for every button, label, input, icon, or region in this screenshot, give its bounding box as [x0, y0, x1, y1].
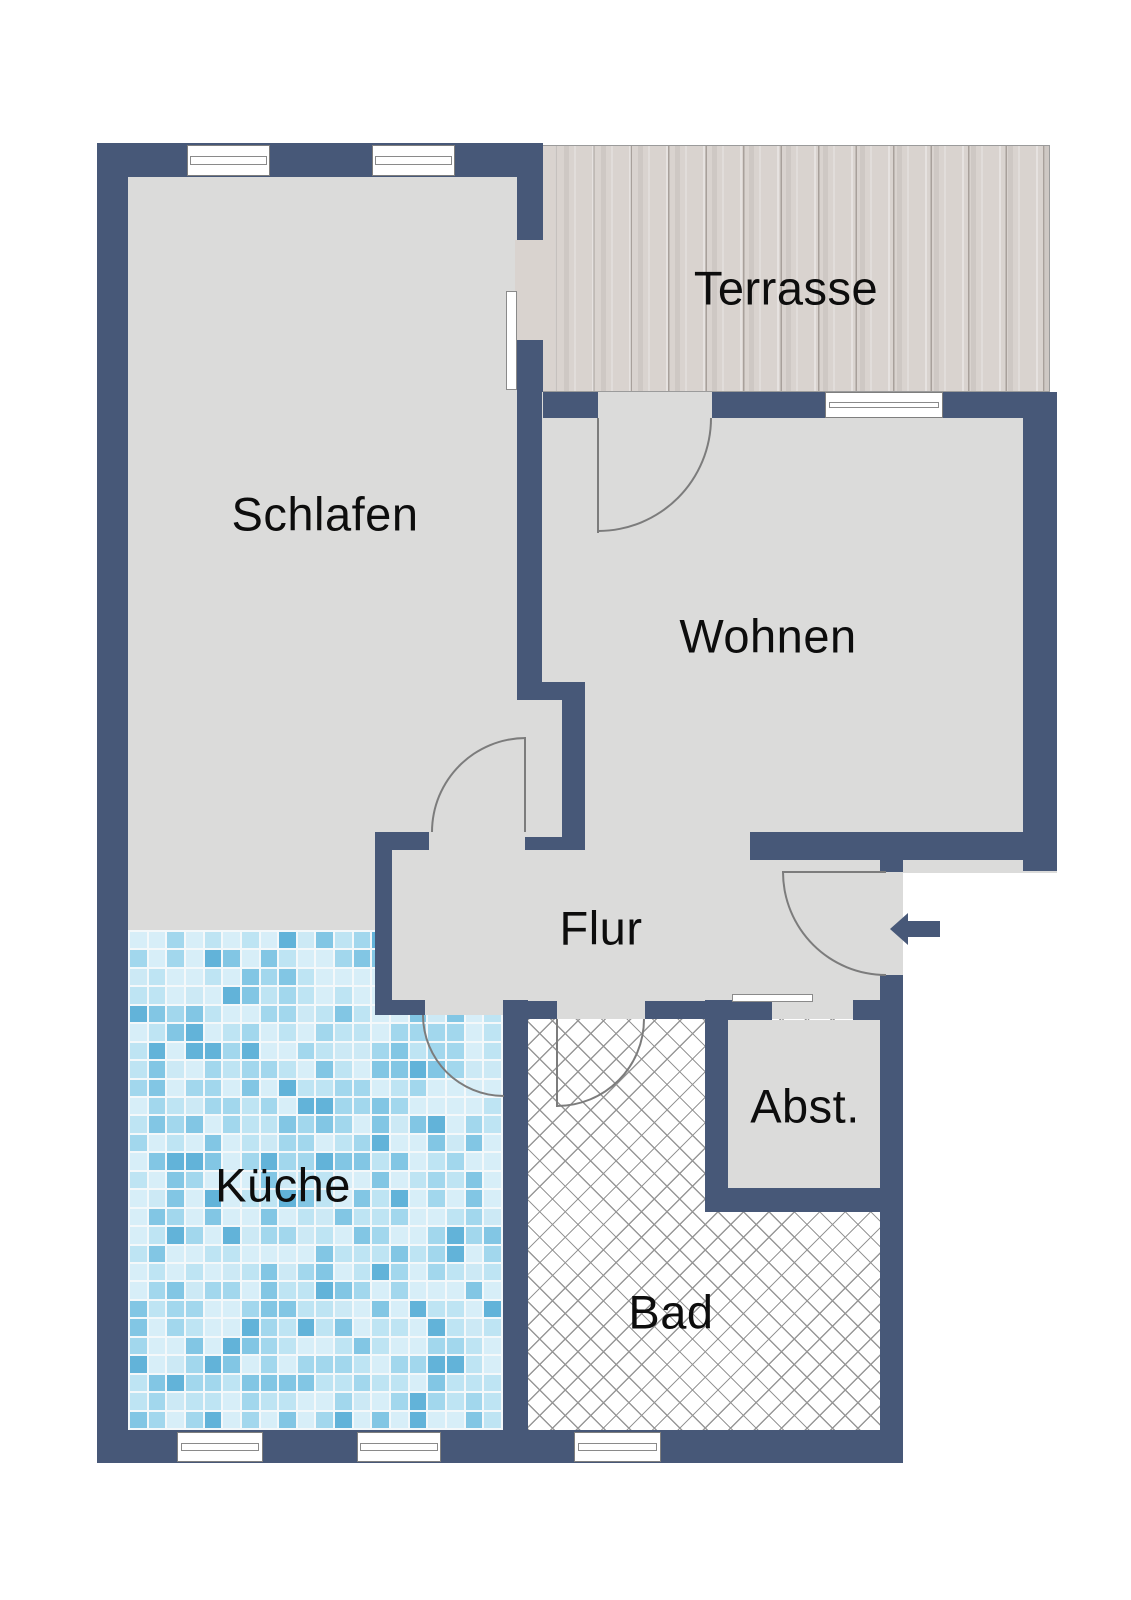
kueche-tile	[354, 932, 371, 948]
kueche-tile	[335, 1006, 352, 1022]
kueche-tile	[447, 1227, 464, 1243]
kueche-tile	[428, 1153, 445, 1169]
label-terrasse: Terrasse	[694, 261, 878, 316]
kueche-tile	[428, 1264, 445, 1280]
kueche-tile	[186, 1098, 203, 1114]
kueche-tile	[372, 1412, 389, 1428]
kueche-tile	[354, 1135, 371, 1151]
kueche-tile	[242, 1006, 259, 1022]
kueche-tile	[279, 1061, 296, 1077]
kueche-tile	[447, 1393, 464, 1409]
kueche-tile	[316, 1412, 333, 1428]
kueche-tile	[130, 987, 147, 1003]
kueche-tile	[410, 1209, 427, 1225]
kueche-tile	[428, 1227, 445, 1243]
window-glass	[578, 1443, 658, 1451]
window-glass	[829, 402, 938, 409]
kueche-tile	[316, 969, 333, 985]
kueche-tile	[410, 1135, 427, 1151]
kueche-tile	[466, 1264, 483, 1280]
kueche-tile	[354, 1024, 371, 1040]
kueche-tile	[354, 1356, 371, 1372]
wall-kueche-stub	[375, 1000, 425, 1015]
kueche-tile	[186, 987, 203, 1003]
kueche-tile	[223, 1375, 240, 1391]
kueche-tile	[186, 1135, 203, 1151]
kueche-tile	[428, 1246, 445, 1262]
kueche-tile	[391, 1393, 408, 1409]
kueche-tile	[391, 1024, 408, 1040]
wall-terrasse-wohnen-mid	[712, 392, 825, 418]
kueche-tile	[223, 1393, 240, 1409]
kueche-tile	[186, 1190, 203, 1206]
kueche-tile	[316, 1043, 333, 1059]
kueche-tile	[372, 1153, 389, 1169]
kueche-tile	[149, 969, 166, 985]
kueche-tile	[149, 1356, 166, 1372]
kueche-tile	[223, 1006, 240, 1022]
kueche-tile	[279, 1098, 296, 1114]
kueche-tile	[242, 932, 259, 948]
kueche-tile	[298, 1061, 315, 1077]
kueche-tile	[354, 950, 371, 966]
kueche-tile	[372, 1190, 389, 1206]
kueche-tile	[298, 1080, 315, 1096]
kueche-tile	[167, 1116, 184, 1132]
kueche-tile	[261, 1080, 278, 1096]
kueche-tile	[279, 950, 296, 966]
kueche-tile	[298, 1006, 315, 1022]
kueche-tile	[428, 1135, 445, 1151]
kueche-tile	[354, 1338, 371, 1354]
kueche-tile	[261, 1098, 278, 1114]
kueche-tile	[335, 1080, 352, 1096]
kueche-tile	[391, 1061, 408, 1077]
kueche-tile	[279, 1338, 296, 1354]
wall-wohnen-bottom	[750, 832, 1057, 860]
kueche-tile	[186, 1356, 203, 1372]
kueche-tile	[316, 987, 333, 1003]
kueche-tile	[316, 1319, 333, 1335]
kueche-tile	[428, 1393, 445, 1409]
kueche-tile	[149, 1412, 166, 1428]
kueche-tile	[298, 1319, 315, 1335]
kueche-tile	[466, 1209, 483, 1225]
kueche-tile	[242, 1098, 259, 1114]
kueche-tile	[279, 1135, 296, 1151]
kueche-tile	[447, 1098, 464, 1114]
kueche-tile	[205, 1319, 222, 1335]
kueche-tile	[335, 1282, 352, 1298]
kueche-tile	[149, 950, 166, 966]
kueche-tile	[316, 1098, 333, 1114]
kueche-tile	[447, 1209, 464, 1225]
kueche-tile	[130, 950, 147, 966]
kueche-tile	[130, 1006, 147, 1022]
kueche-tile	[186, 1153, 203, 1169]
entrance-arrow-icon	[890, 913, 908, 945]
kueche-tile	[261, 1227, 278, 1243]
kueche-tile	[130, 1043, 147, 1059]
kueche-tile	[167, 1393, 184, 1409]
kueche-tile	[279, 1319, 296, 1335]
kueche-tile	[242, 1080, 259, 1096]
kueche-tile	[279, 1375, 296, 1391]
kueche-tile	[149, 1264, 166, 1280]
kueche-tile	[149, 1227, 166, 1243]
kueche-tile	[447, 1412, 464, 1428]
kueche-tile	[298, 1098, 315, 1114]
kueche-tile	[167, 1375, 184, 1391]
kueche-tile	[149, 932, 166, 948]
kueche-tile	[130, 1098, 147, 1114]
kueche-tile	[205, 1246, 222, 1262]
kueche-tile	[223, 1098, 240, 1114]
kueche-tile	[298, 1116, 315, 1132]
kueche-tile	[242, 987, 259, 1003]
kueche-tile	[410, 1375, 427, 1391]
kueche-tile	[354, 1190, 371, 1206]
kueche-tile	[279, 987, 296, 1003]
kueche-tile	[447, 1301, 464, 1317]
kueche-tile	[130, 1190, 147, 1206]
kueche-tile	[372, 1043, 389, 1059]
kueche-tile	[316, 1080, 333, 1096]
kueche-tile	[223, 1080, 240, 1096]
wall-exterior-right-lower	[880, 975, 903, 1463]
kueche-tile	[354, 1153, 371, 1169]
kueche-tile	[466, 1116, 483, 1132]
kueche-tile	[372, 1080, 389, 1096]
kueche-tile	[186, 1412, 203, 1428]
kueche-tile	[484, 1246, 501, 1262]
kueche-tile	[391, 1264, 408, 1280]
kueche-tile	[428, 1301, 445, 1317]
kueche-tile	[186, 932, 203, 948]
entrance-arrow-shaft	[908, 921, 940, 937]
kueche-tile	[428, 1375, 445, 1391]
window-glass	[181, 1443, 260, 1451]
kueche-tile	[167, 1135, 184, 1151]
kueche-tile	[279, 1227, 296, 1243]
kueche-tile	[484, 1264, 501, 1280]
kueche-tile	[410, 1301, 427, 1317]
kueche-tile	[223, 1338, 240, 1354]
kueche-tile	[316, 1006, 333, 1022]
kueche-tile	[130, 1024, 147, 1040]
kueche-tile	[261, 1338, 278, 1354]
kueche-tile	[298, 1024, 315, 1040]
window-wohnen-terrasse	[825, 392, 943, 418]
kueche-tile	[335, 932, 352, 948]
kueche-tile	[186, 1172, 203, 1188]
kueche-tile	[167, 1024, 184, 1040]
kueche-tile	[316, 932, 333, 948]
wall-kueche-flur	[375, 832, 392, 1015]
kueche-tile	[298, 1375, 315, 1391]
kueche-tile	[298, 1356, 315, 1372]
kueche-tile	[466, 1412, 483, 1428]
label-schlafen: Schlafen	[232, 487, 419, 542]
kueche-tile	[391, 1080, 408, 1096]
kueche-tile	[167, 1043, 184, 1059]
kueche-tile	[261, 1246, 278, 1262]
kueche-tile	[484, 1393, 501, 1409]
kueche-tile	[354, 969, 371, 985]
label-bad: Bad	[628, 1285, 713, 1340]
kueche-tile	[149, 1209, 166, 1225]
window-kueche-bottom-right	[357, 1432, 441, 1462]
kueche-tile	[354, 1375, 371, 1391]
kueche-tile	[242, 1301, 259, 1317]
kueche-tile	[130, 1209, 147, 1225]
kueche-tile	[466, 1319, 483, 1335]
kueche-tile	[223, 1264, 240, 1280]
wall-terrasse-wohnen-right	[943, 392, 1040, 418]
wall-abst-top-left	[705, 1000, 772, 1020]
kueche-tile	[316, 1061, 333, 1077]
kueche-tile	[205, 950, 222, 966]
kueche-tile	[354, 1209, 371, 1225]
kueche-tile	[391, 1135, 408, 1151]
kueche-tile	[484, 1227, 501, 1243]
kueche-tile	[130, 1301, 147, 1317]
kueche-tile	[205, 1116, 222, 1132]
wall-schlafen-wohnen-upper	[517, 392, 542, 700]
kueche-tile	[428, 1282, 445, 1298]
kueche-tile	[447, 1264, 464, 1280]
kueche-tile	[205, 1061, 222, 1077]
kueche-tile	[242, 969, 259, 985]
kueche-tile	[335, 1227, 352, 1243]
kueche-tile	[335, 1061, 352, 1077]
kueche-tile	[186, 1338, 203, 1354]
kueche-tile	[335, 1043, 352, 1059]
kueche-tile	[354, 1043, 371, 1059]
kueche-tile	[130, 932, 147, 948]
kueche-tile	[223, 1412, 240, 1428]
kueche-tile	[205, 1043, 222, 1059]
kueche-tile	[205, 1412, 222, 1428]
kueche-tile	[149, 1098, 166, 1114]
kueche-tile	[167, 987, 184, 1003]
kueche-tile	[279, 1301, 296, 1317]
kueche-tile	[410, 1393, 427, 1409]
kueche-tile	[466, 1172, 483, 1188]
window-glass	[190, 156, 266, 164]
kueche-tile	[428, 1209, 445, 1225]
window-glass	[360, 1443, 437, 1451]
kueche-tile	[447, 1172, 464, 1188]
kueche-tile	[279, 1080, 296, 1096]
kueche-tile	[167, 1209, 184, 1225]
kueche-tile	[130, 1282, 147, 1298]
kueche-tile	[391, 1098, 408, 1114]
kueche-tile	[298, 1246, 315, 1262]
kueche-tile	[167, 1080, 184, 1096]
kueche-tile	[466, 1227, 483, 1243]
kueche-tile	[372, 1246, 389, 1262]
wall-schlafen-terrasse-upper	[517, 177, 543, 240]
kueche-tile	[298, 969, 315, 985]
kueche-tile	[484, 1098, 501, 1114]
kueche-tile	[186, 969, 203, 985]
kueche-tile	[242, 950, 259, 966]
kueche-tile	[167, 1246, 184, 1262]
kueche-tile	[261, 1043, 278, 1059]
kueche-tile	[167, 1282, 184, 1298]
kueche-tile	[354, 1246, 371, 1262]
kueche-tile	[261, 1301, 278, 1317]
kueche-tile	[466, 1282, 483, 1298]
wall-schlafen-wohnen-lower	[562, 700, 585, 850]
kueche-tile	[279, 1246, 296, 1262]
kueche-tile	[372, 1264, 389, 1280]
kueche-tile	[447, 1282, 464, 1298]
kueche-tile	[391, 1116, 408, 1132]
kueche-tile	[186, 950, 203, 966]
kueche-tile	[261, 1061, 278, 1077]
kueche-tile	[354, 1098, 371, 1114]
kueche-tile	[466, 1190, 483, 1206]
kueche-tile	[149, 1393, 166, 1409]
kueche-tile	[372, 1282, 389, 1298]
kueche-tile	[261, 1393, 278, 1409]
kueche-tile	[167, 1412, 184, 1428]
kueche-tile	[372, 1116, 389, 1132]
kueche-tile	[205, 1135, 222, 1151]
door-slider-abst	[732, 994, 813, 1002]
kueche-tile	[186, 1282, 203, 1298]
kueche-tile	[242, 1061, 259, 1077]
kueche-tile	[205, 1080, 222, 1096]
kueche-tile	[298, 1135, 315, 1151]
kueche-tile	[130, 969, 147, 985]
kueche-tile	[279, 1116, 296, 1132]
kueche-tile	[167, 1153, 184, 1169]
kueche-tile	[447, 1356, 464, 1372]
kueche-tile	[279, 1282, 296, 1298]
kueche-tile	[205, 1264, 222, 1280]
kueche-tile	[167, 1098, 184, 1114]
kueche-tile	[316, 1393, 333, 1409]
kueche-tile	[261, 1319, 278, 1335]
kueche-tile	[298, 932, 315, 948]
kueche-tile	[261, 932, 278, 948]
kueche-tile	[242, 1338, 259, 1354]
kueche-tile	[242, 1227, 259, 1243]
kueche-tile	[186, 1024, 203, 1040]
kueche-tile	[484, 1301, 501, 1317]
floorplan: Schlafen Terrasse Wohnen Flur Küche Abst…	[0, 0, 1131, 1600]
kueche-tile	[149, 1006, 166, 1022]
kueche-tile	[391, 1246, 408, 1262]
kueche-tile	[410, 1116, 427, 1132]
kueche-tile	[205, 1098, 222, 1114]
kueche-tile	[186, 1006, 203, 1022]
kueche-tile	[335, 1338, 352, 1354]
kueche-tile	[205, 987, 222, 1003]
kueche-tile	[149, 1172, 166, 1188]
kueche-tile	[261, 987, 278, 1003]
kueche-tile	[316, 1264, 333, 1280]
kueche-tile	[223, 1061, 240, 1077]
kueche-tile	[447, 1135, 464, 1151]
kueche-tile	[186, 1061, 203, 1077]
kueche-tile	[242, 1393, 259, 1409]
kueche-tile	[410, 1061, 427, 1077]
kueche-tile	[223, 1227, 240, 1243]
kueche-tile	[149, 1338, 166, 1354]
kueche-tile	[186, 1080, 203, 1096]
kueche-tile	[372, 1301, 389, 1317]
kueche-tile	[484, 1209, 501, 1225]
kueche-tile	[316, 1024, 333, 1040]
kueche-tile	[372, 1135, 389, 1151]
wall-abst-bottom	[705, 1188, 903, 1212]
kueche-tile	[335, 1319, 352, 1335]
kueche-tile	[205, 932, 222, 948]
kueche-tile	[335, 1375, 352, 1391]
kueche-tile	[316, 1282, 333, 1298]
kueche-tile	[167, 1356, 184, 1372]
kueche-tile	[223, 1135, 240, 1151]
kueche-tile	[391, 1227, 408, 1243]
kueche-tile	[149, 1135, 166, 1151]
kueche-tile	[354, 1319, 371, 1335]
kueche-tile	[242, 1135, 259, 1151]
kueche-tile	[261, 1116, 278, 1132]
kueche-tile	[335, 1098, 352, 1114]
kueche-tile	[130, 1338, 147, 1354]
kueche-tile	[261, 1024, 278, 1040]
kueche-tile	[223, 1116, 240, 1132]
kueche-tile	[335, 969, 352, 985]
kueche-tile	[372, 1061, 389, 1077]
kueche-tile	[372, 1209, 389, 1225]
kueche-tile	[130, 1412, 147, 1428]
kueche-tile	[410, 1412, 427, 1428]
kueche-tile	[354, 987, 371, 1003]
label-kueche: Küche	[215, 1158, 351, 1213]
kueche-tile	[205, 1227, 222, 1243]
kueche-tile	[316, 1356, 333, 1372]
wall-exterior-top	[97, 143, 543, 177]
label-abst: Abst.	[750, 1079, 860, 1134]
kueche-tile	[279, 1006, 296, 1022]
kueche-tile	[242, 1246, 259, 1262]
kueche-tile	[428, 1319, 445, 1335]
kueche-tile	[372, 1172, 389, 1188]
kueche-tile	[186, 1227, 203, 1243]
kueche-tile	[410, 1080, 427, 1096]
kueche-tile	[186, 1209, 203, 1225]
wall-schlafen-wohnen-jog	[542, 682, 585, 700]
kueche-tile	[279, 1043, 296, 1059]
kueche-tile	[391, 1319, 408, 1335]
kueche-tile	[372, 1393, 389, 1409]
kueche-tile	[242, 1024, 259, 1040]
kueche-tile	[149, 1024, 166, 1040]
kueche-tile	[484, 1190, 501, 1206]
kueche-tile	[391, 1172, 408, 1188]
kueche-tile	[130, 1061, 147, 1077]
kueche-tile	[316, 1135, 333, 1151]
kueche-tile	[484, 1135, 501, 1151]
kueche-tile	[298, 1043, 315, 1059]
kueche-tile	[223, 1024, 240, 1040]
kueche-tile	[466, 1246, 483, 1262]
